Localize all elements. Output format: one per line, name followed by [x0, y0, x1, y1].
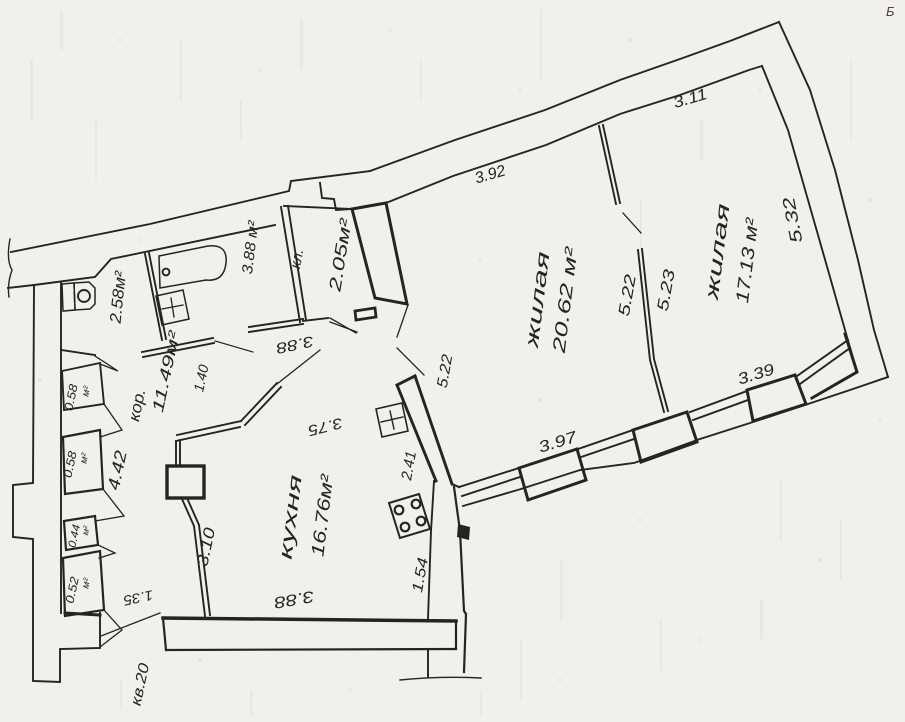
svg-text:кл.: кл. [287, 248, 307, 270]
svg-text:Б: Б [886, 4, 895, 19]
